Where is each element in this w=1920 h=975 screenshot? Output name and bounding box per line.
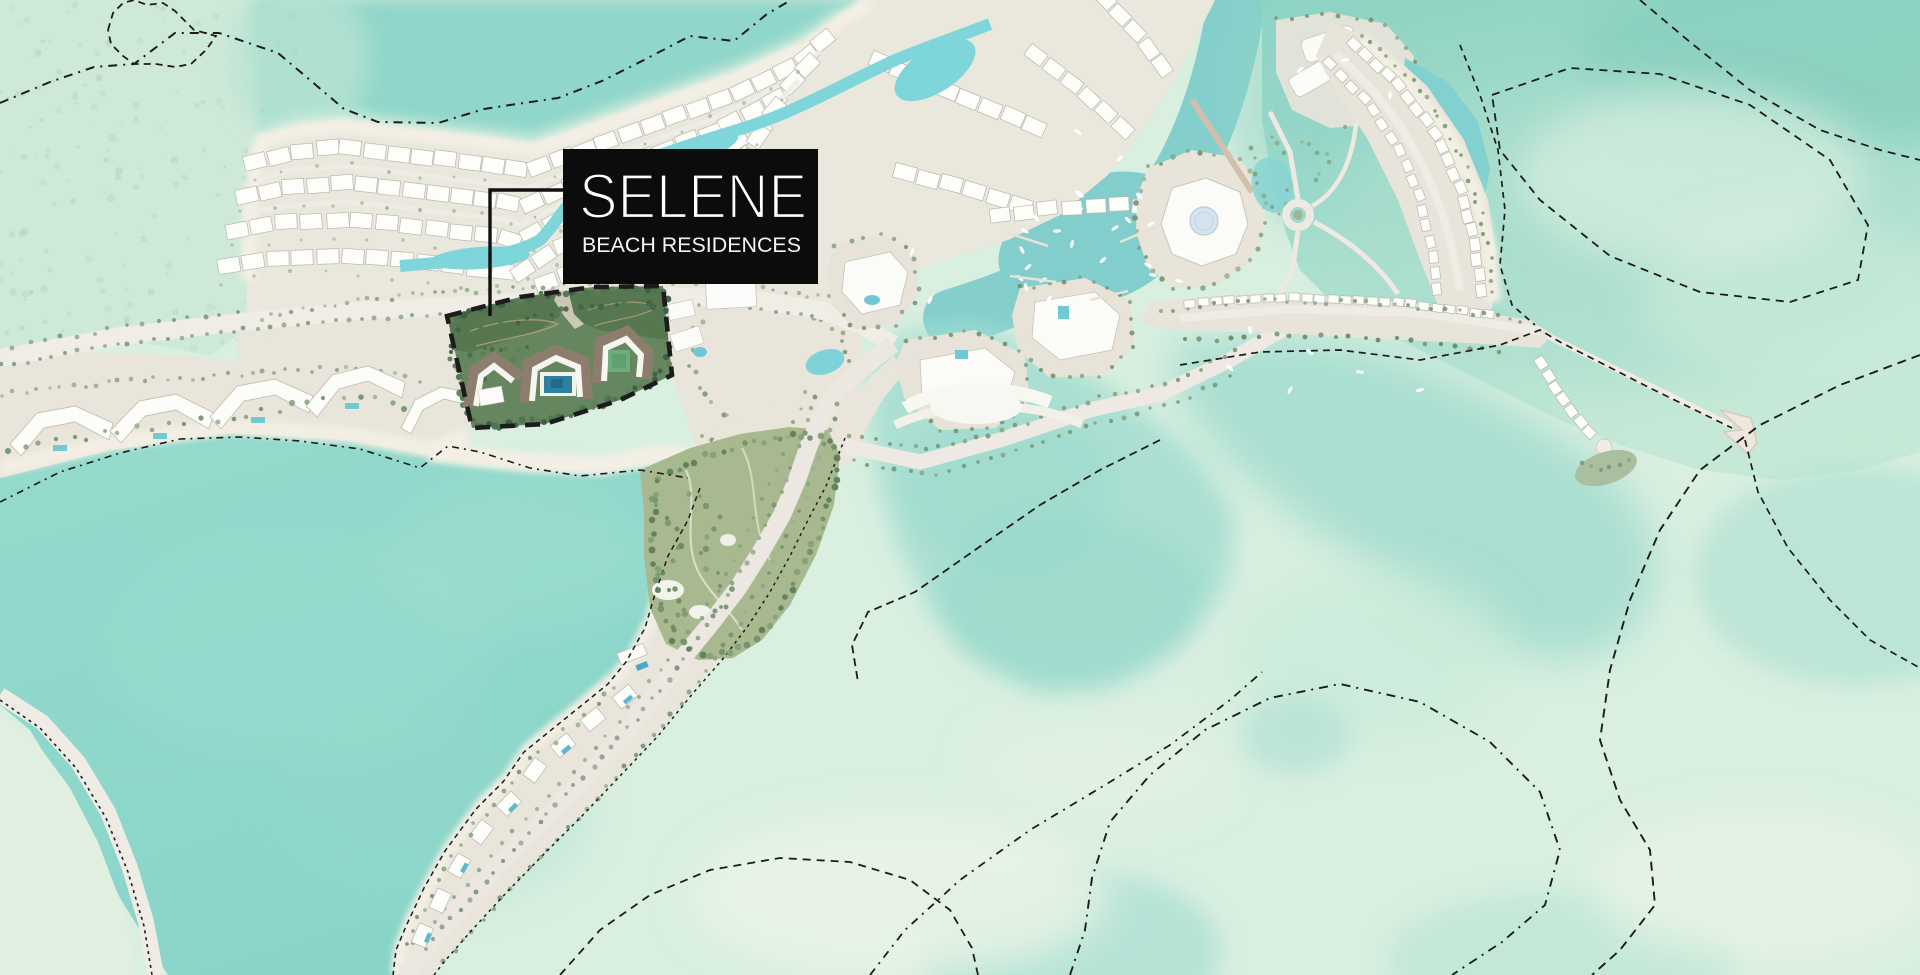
svg-text:BEACH RESIDENCES: BEACH RESIDENCES	[582, 234, 801, 257]
svg-text:SELENE: SELENE	[579, 162, 807, 232]
